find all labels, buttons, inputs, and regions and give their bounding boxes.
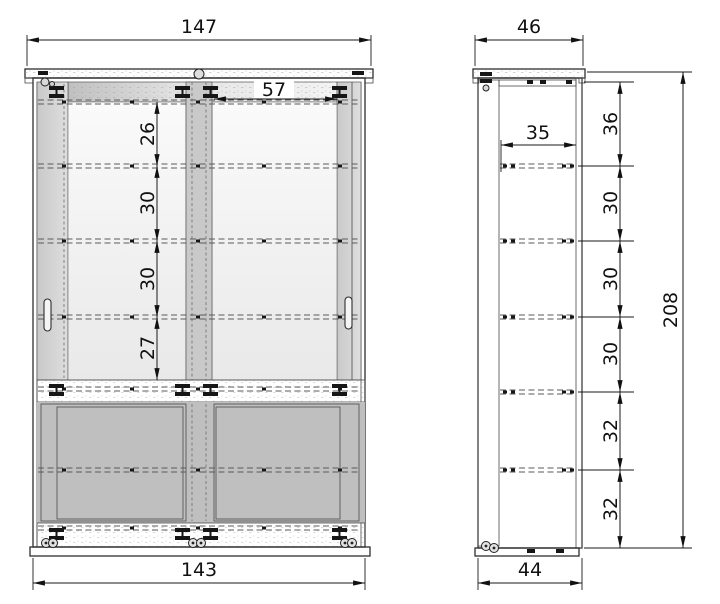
cabinet-technical-drawing: 147 143 57 26 30 30 27 bbox=[0, 0, 720, 604]
front-right-stile bbox=[337, 82, 361, 380]
dim-front-width-bottom: 143 bbox=[181, 559, 217, 581]
dim-side-section-1: 36 bbox=[600, 112, 622, 136]
front-view bbox=[25, 69, 373, 556]
dim-side-section-4: 30 bbox=[600, 342, 622, 366]
dim-side-section-6: 32 bbox=[600, 497, 622, 521]
dim-front-section-1: 26 bbox=[137, 122, 159, 146]
front-glass-door-left bbox=[68, 102, 186, 380]
dim-front-section-2: 30 bbox=[137, 191, 159, 215]
drawing-canvas: 147 143 57 26 30 30 27 bbox=[0, 0, 720, 604]
dim-front-width-top: 147 bbox=[181, 16, 217, 38]
top-roller-icon bbox=[194, 69, 204, 79]
dim-side-section-5: 32 bbox=[600, 419, 622, 443]
dim-side-depth-top: 46 bbox=[517, 16, 541, 38]
front-center-mullion bbox=[186, 82, 212, 380]
front-glass-door-right bbox=[212, 102, 337, 380]
dim-side-depth-bottom: 44 bbox=[518, 559, 542, 581]
dim-total-height: 208 bbox=[660, 292, 682, 328]
front-lower-section bbox=[37, 402, 365, 523]
dim-front-section-4: 27 bbox=[137, 336, 159, 360]
dim-door-glass-width: 57 bbox=[262, 79, 286, 101]
front-left-stile bbox=[37, 82, 68, 380]
left-door-handle bbox=[44, 299, 51, 331]
right-door-handle bbox=[345, 297, 352, 329]
dim-side-section-3: 30 bbox=[600, 267, 622, 291]
dim-interior-depth: 35 bbox=[526, 122, 550, 144]
dim-side-section-2: 30 bbox=[600, 191, 622, 215]
dim-front-section-3: 30 bbox=[137, 267, 159, 291]
